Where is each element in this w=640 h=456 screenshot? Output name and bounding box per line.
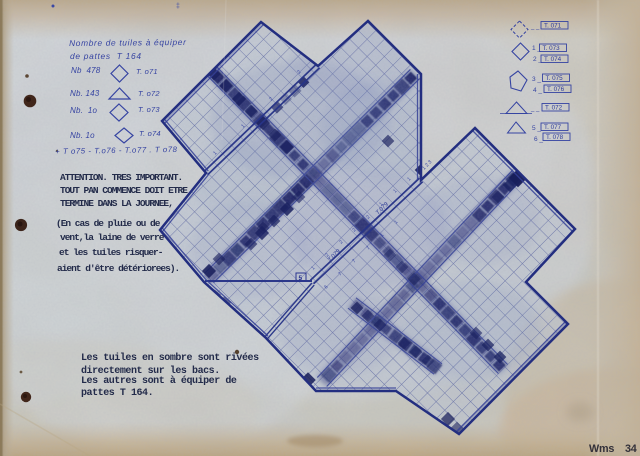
svg-text:3 _: 3 _ bbox=[532, 76, 541, 83]
svg-text:T. 071: T. 071 bbox=[544, 23, 562, 30]
svg-text:_ _: _ _ bbox=[530, 106, 540, 112]
svg-text:5 _: 5 _ bbox=[532, 125, 541, 132]
svg-text:T. 077: T. 077 bbox=[544, 124, 562, 131]
svg-text:6 _: 6 _ bbox=[534, 136, 543, 143]
svg-text:T. 076: T. 076 bbox=[547, 86, 565, 93]
svg-text:T. 075: T. 075 bbox=[546, 75, 564, 82]
svg-text:T. 078: T. 078 bbox=[546, 134, 564, 141]
svg-text:T. 072: T. 072 bbox=[545, 105, 563, 112]
svg-text:T. 073: T. 073 bbox=[543, 45, 561, 52]
svg-text:_ _: _ _ bbox=[530, 24, 540, 30]
svg-text:4 _: 4 _ bbox=[533, 87, 542, 94]
svg-text:1 _: 1 _ bbox=[532, 45, 541, 52]
svg-text:T. 074: T. 074 bbox=[544, 56, 562, 63]
